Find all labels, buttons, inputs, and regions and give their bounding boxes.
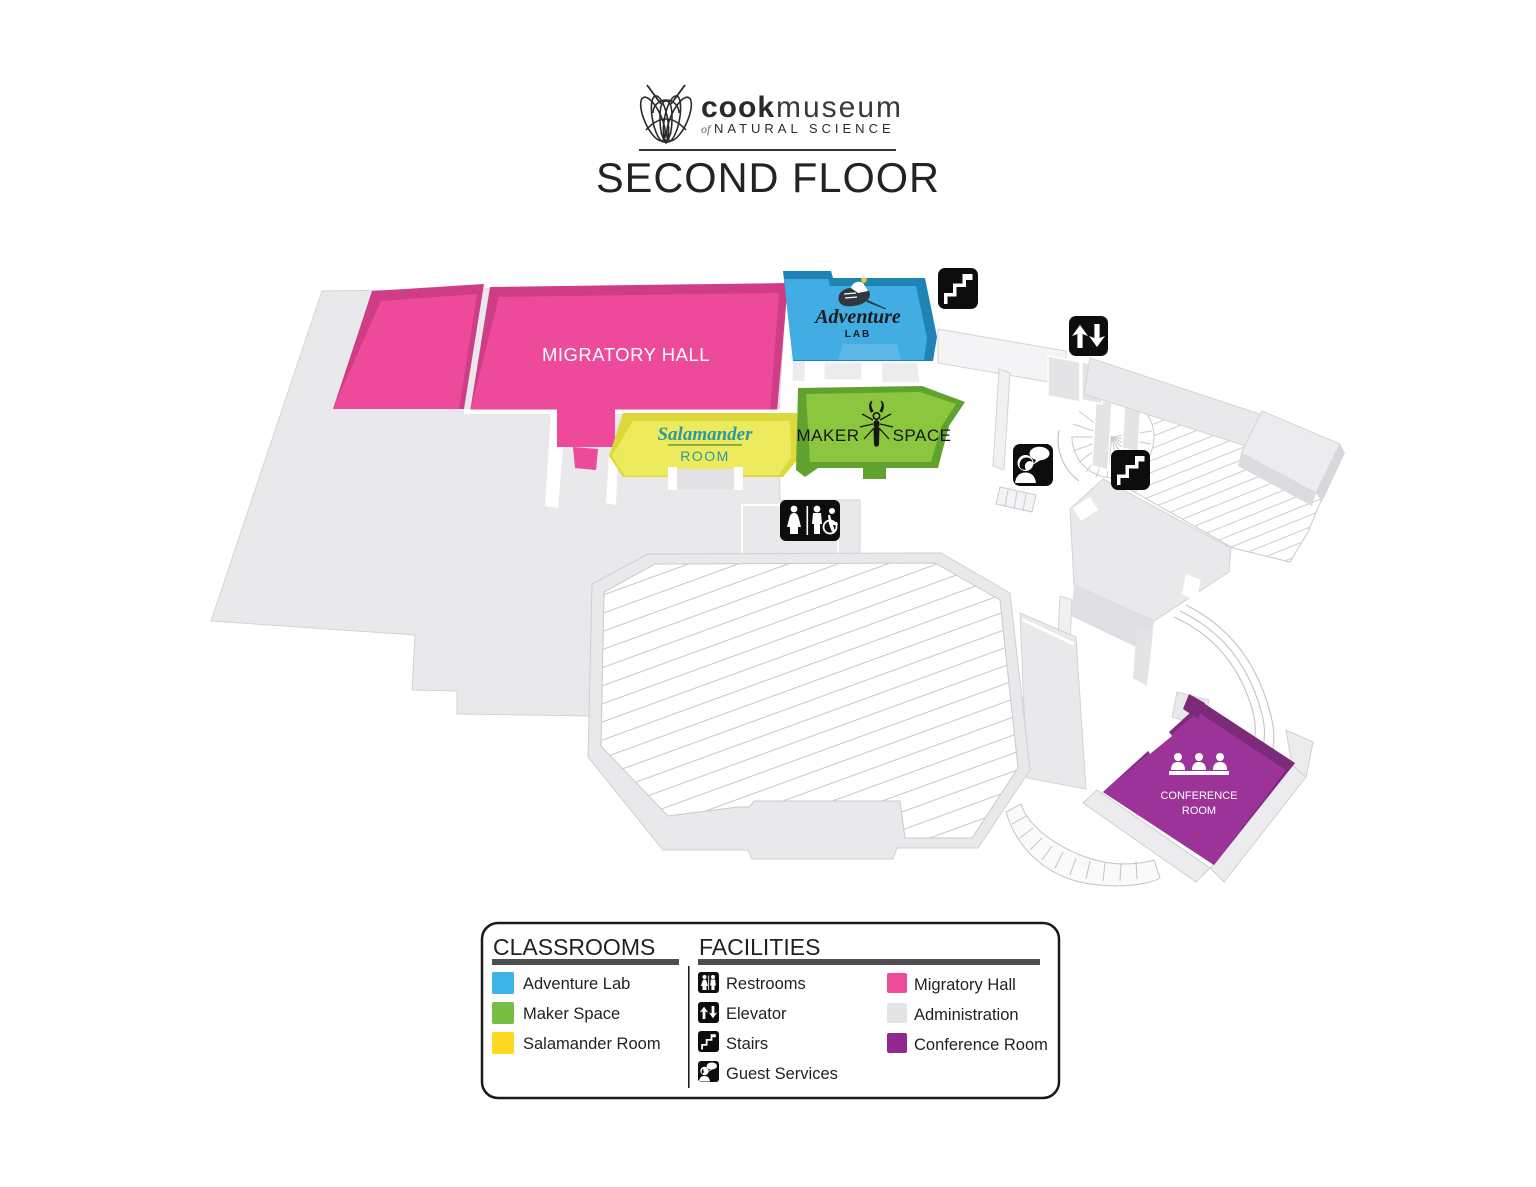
svg-text:MAKER: MAKER — [797, 426, 860, 445]
svg-text:MIGRATORY HALL: MIGRATORY HALL — [542, 344, 710, 365]
svg-text:Maker Space: Maker Space — [523, 1005, 620, 1023]
svg-text:CONFERENCE: CONFERENCE — [1160, 790, 1237, 802]
svg-text:CLASSROOMS: CLASSROOMS — [493, 934, 655, 960]
svg-text:ROOM: ROOM — [1182, 805, 1216, 817]
svg-text:cook: cook — [701, 91, 775, 124]
svg-text:Guest Services: Guest Services — [726, 1065, 838, 1083]
svg-text:Administration: Administration — [914, 1006, 1019, 1024]
svg-text:Conference Room: Conference Room — [914, 1036, 1048, 1054]
svg-text:Stairs: Stairs — [726, 1035, 768, 1053]
svg-text:FACILITIES: FACILITIES — [699, 934, 820, 960]
svg-text:Restrooms: Restrooms — [726, 975, 806, 993]
svg-text:SECOND FLOOR: SECOND FLOOR — [596, 154, 940, 201]
svg-text:LAB: LAB — [845, 329, 872, 340]
svg-text:of: of — [701, 122, 712, 136]
svg-text:museum: museum — [776, 91, 903, 124]
svg-text:Migratory Hall: Migratory Hall — [914, 976, 1016, 994]
svg-text:NATURAL SCIENCE: NATURAL SCIENCE — [714, 121, 895, 136]
svg-text:Adventure Lab: Adventure Lab — [523, 975, 630, 993]
svg-text:Adventure: Adventure — [813, 306, 901, 328]
svg-text:Salamander Room: Salamander Room — [523, 1035, 661, 1053]
svg-text:SPACE: SPACE — [893, 426, 952, 445]
svg-text:Elevator: Elevator — [726, 1005, 787, 1023]
svg-text:Salamander: Salamander — [657, 424, 753, 445]
svg-text:ROOM: ROOM — [680, 448, 730, 464]
